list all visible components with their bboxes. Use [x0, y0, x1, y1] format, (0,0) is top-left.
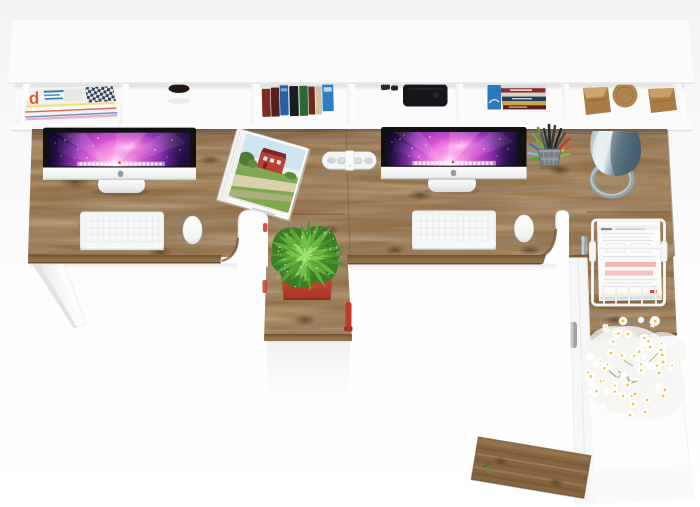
svg-text:d: d	[29, 89, 40, 108]
